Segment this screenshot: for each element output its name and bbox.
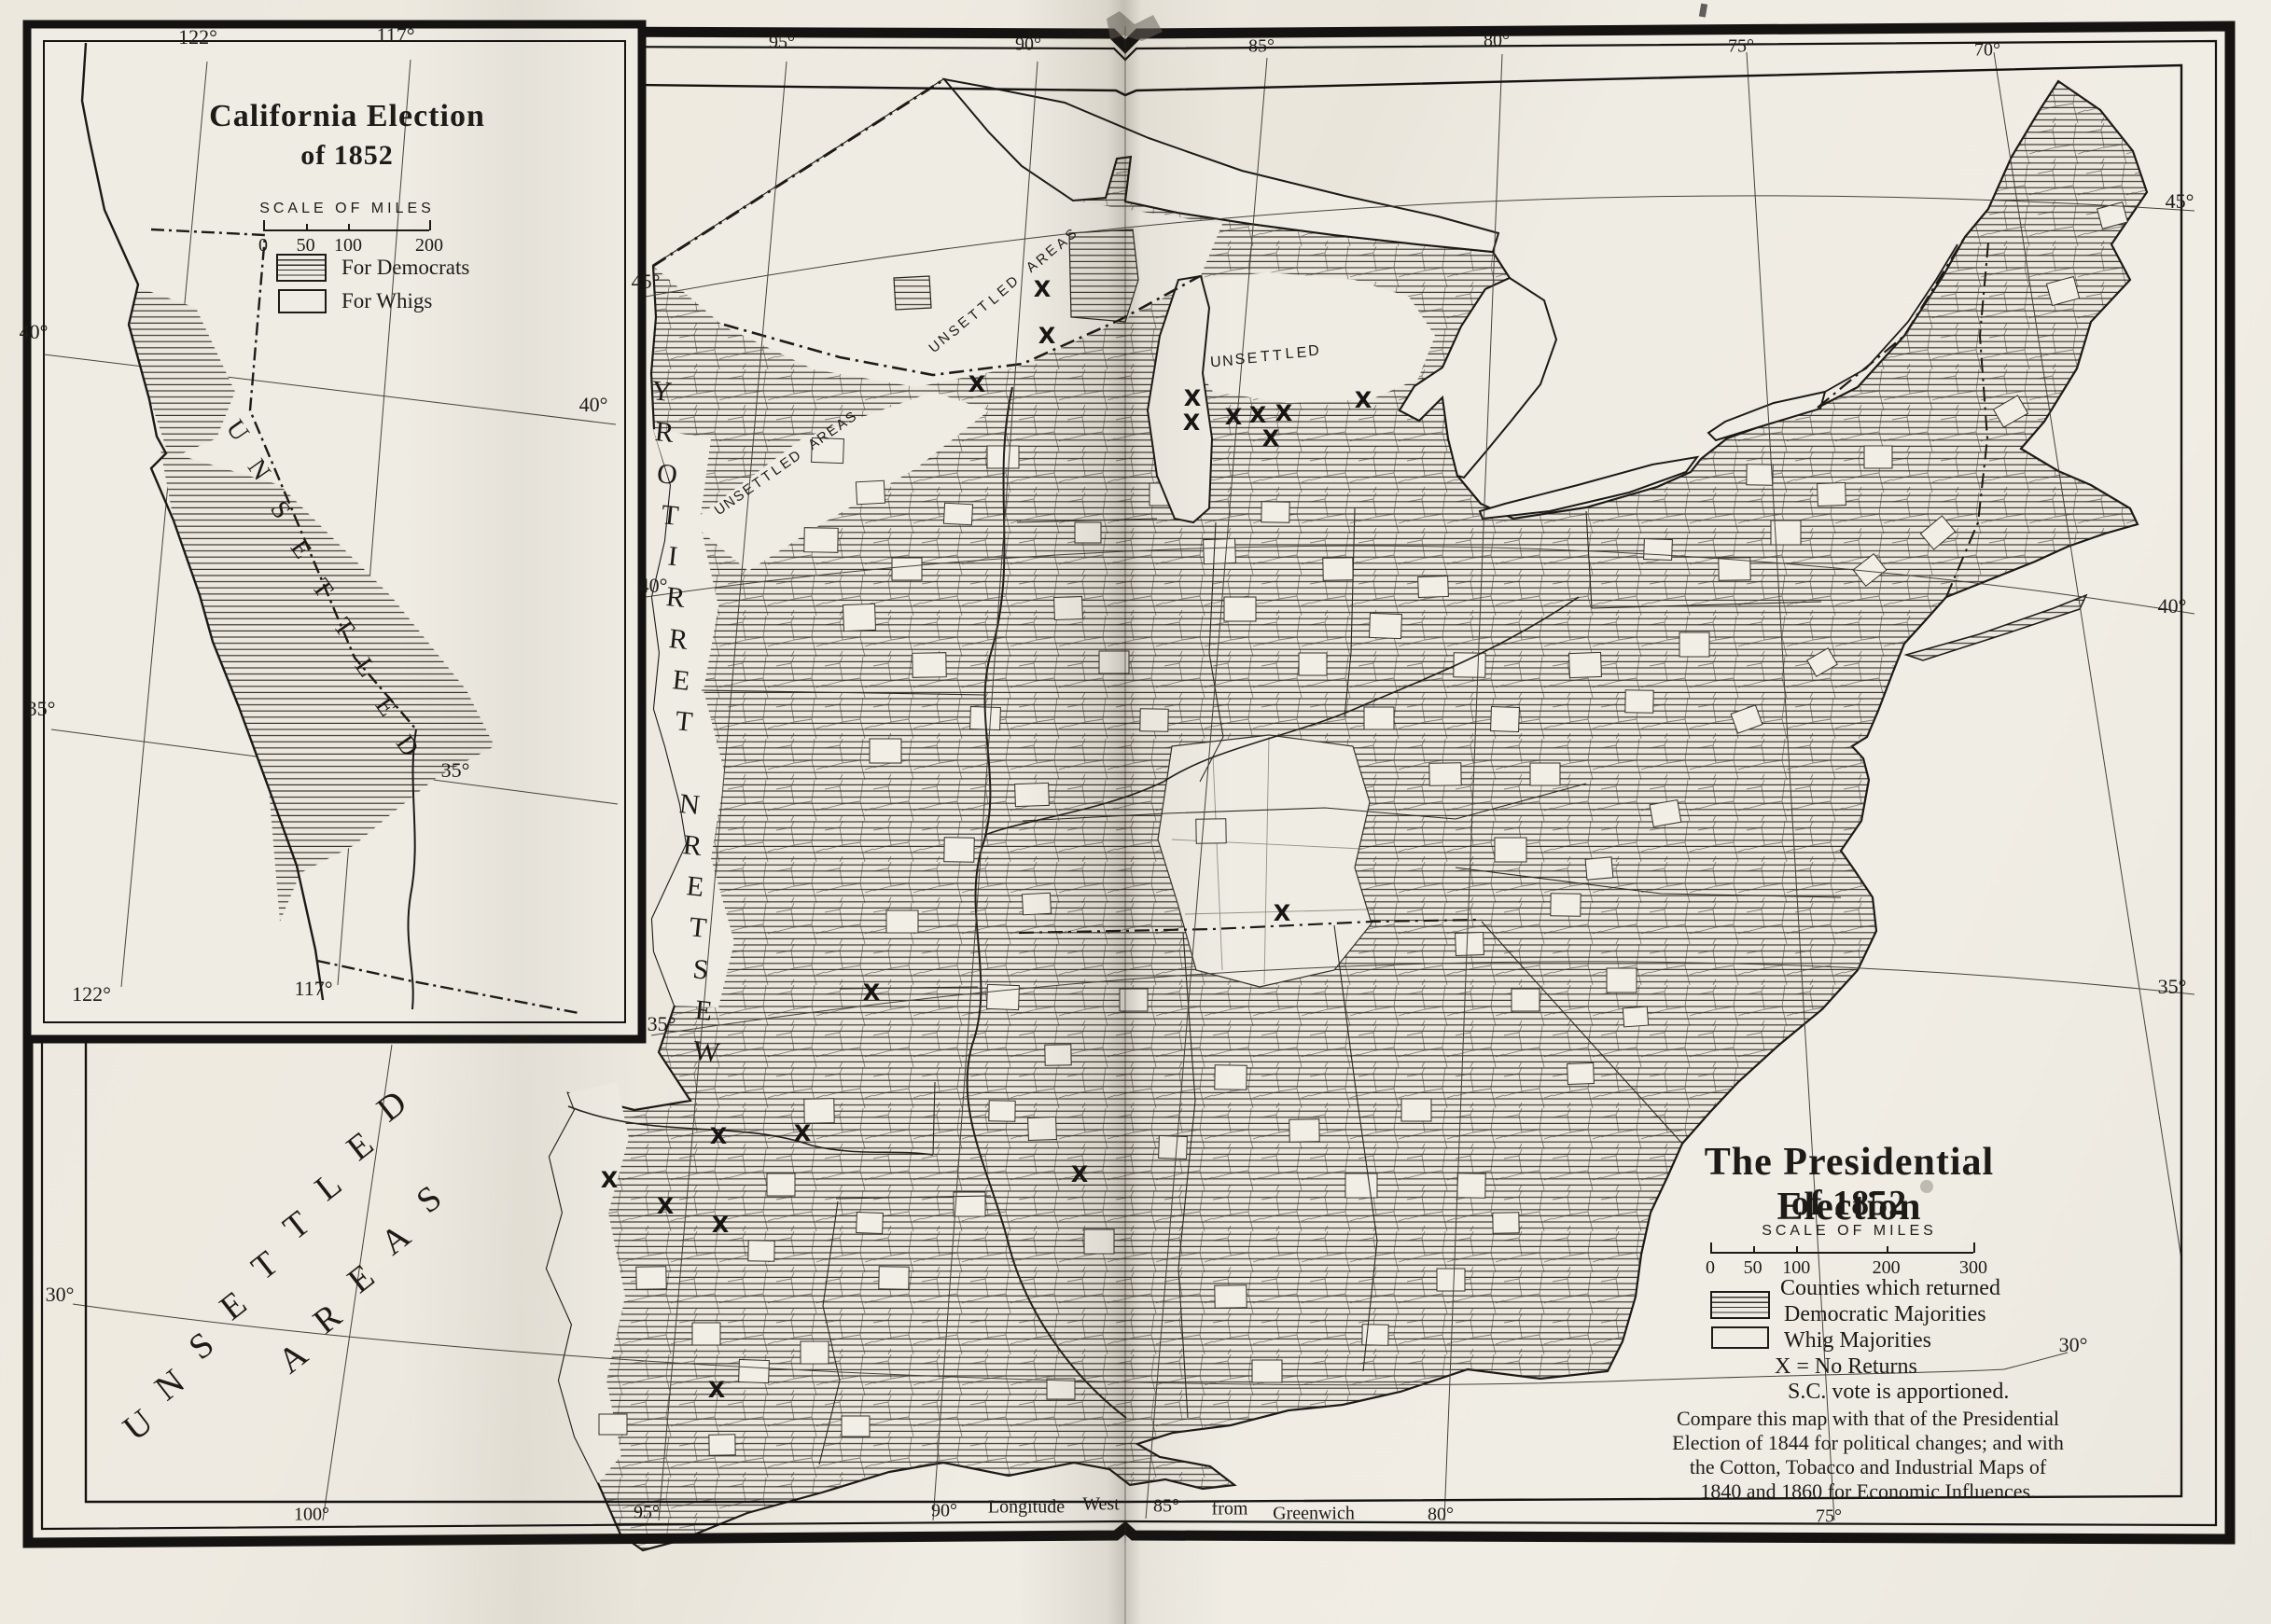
no-returns-x-mark: X bbox=[601, 1167, 619, 1193]
no-returns-x-mark: X bbox=[1183, 409, 1201, 436]
whig-county-patch bbox=[989, 1101, 1015, 1121]
meridian-label-top-70: 70° bbox=[1974, 40, 2000, 62]
inset-legend-democrat-swatch bbox=[276, 254, 327, 282]
compare-note-line: Election of 1844 for political changes; … bbox=[1672, 1431, 2064, 1455]
parallel-label-right-35: 35° bbox=[2158, 975, 2187, 999]
inset-parallel-label-right-35: 35° bbox=[441, 758, 470, 783]
map-sheet: California Election of 1852 Scale of Mil… bbox=[0, 0, 2271, 1624]
whig-county-patch bbox=[1719, 558, 1750, 581]
whig-county-patch bbox=[1323, 558, 1353, 581]
whig-county-patch bbox=[842, 1416, 870, 1437]
unsettled-michigan-letter: D bbox=[1308, 343, 1320, 361]
whig-county-patch bbox=[1418, 576, 1449, 597]
whig-county-patch bbox=[636, 1267, 666, 1290]
whig-county-patch bbox=[1429, 763, 1461, 786]
no-returns-x-mark: X bbox=[1275, 400, 1293, 426]
no-returns-x-mark: X bbox=[1184, 385, 1202, 411]
scale-bar-tick-label: 100 bbox=[334, 235, 362, 257]
whig-county-patch bbox=[1370, 613, 1402, 638]
inset-meridian-label-bottom-122: 122° bbox=[72, 982, 111, 1006]
whig-county-patch bbox=[1120, 989, 1148, 1011]
whig-county-patch bbox=[1456, 932, 1484, 955]
scale-bar-tick bbox=[429, 220, 431, 230]
inset-parallel-label-right-40: 40° bbox=[579, 393, 608, 417]
no-returns-x-mark: X bbox=[1038, 323, 1056, 349]
whig-county-patch bbox=[1204, 538, 1236, 563]
whig-county-patch bbox=[856, 480, 885, 505]
whig-county-patch bbox=[1493, 1213, 1519, 1233]
whig-county-patch bbox=[1818, 482, 1846, 506]
meridian-label-top-90: 90° bbox=[1015, 35, 1041, 56]
california-inset-map bbox=[23, 21, 646, 1043]
whig-county-patch bbox=[692, 1323, 720, 1345]
no-returns-x-mark: X bbox=[712, 1212, 730, 1238]
western-territory-label-letter: T bbox=[688, 911, 708, 945]
whig-county-patch bbox=[1747, 465, 1773, 485]
whig-county-patch bbox=[1261, 502, 1289, 523]
meridian-label-bottom-85: 85° bbox=[1153, 1496, 1179, 1518]
western-territory-label-letter: N bbox=[677, 787, 701, 821]
western-territory-label-letter: E bbox=[685, 870, 705, 904]
whig-county-patch bbox=[1585, 857, 1613, 880]
whig-county-patch bbox=[1015, 783, 1050, 806]
whig-county-patch bbox=[987, 984, 1020, 1009]
inset-legend-whig-label: For Whigs bbox=[341, 289, 432, 313]
western-territory-label-letter: R bbox=[653, 416, 675, 450]
whig-county-patch bbox=[913, 653, 946, 678]
main-legend-sc-note: S.C. vote is apportioned. bbox=[1788, 1380, 2009, 1405]
whig-county-patch bbox=[886, 910, 918, 933]
whig-county-patch bbox=[892, 558, 922, 580]
main-legend-whig-label: Whig Majorities bbox=[1784, 1328, 1931, 1353]
whig-county-patch bbox=[804, 528, 838, 553]
whig-county-patch bbox=[1650, 800, 1681, 827]
no-returns-x-mark: X bbox=[1249, 402, 1267, 428]
scale-bar-tick-label: 200 bbox=[415, 235, 443, 257]
main-scale-caption: Scale of Miles bbox=[1762, 1223, 1937, 1240]
western-territory-label-letter: O bbox=[655, 457, 678, 491]
meridian-label-bottom-80: 80° bbox=[1428, 1505, 1454, 1526]
main-legend-no-returns: X = No Returns bbox=[1775, 1354, 1917, 1380]
bottom-margin-word-west: West bbox=[1082, 1494, 1120, 1516]
whig-county-patch bbox=[1299, 653, 1327, 675]
meridian-label-top-85: 85° bbox=[1248, 36, 1275, 58]
whig-county-patch bbox=[801, 1341, 829, 1364]
whig-county-patch bbox=[1159, 1135, 1188, 1159]
whig-county-patch bbox=[709, 1435, 735, 1455]
western-territory-label-letter: R bbox=[667, 623, 689, 657]
inset-meridian-label-top-117: 117° bbox=[377, 23, 415, 48]
whig-county-patch bbox=[1401, 1099, 1431, 1121]
parallel-label-right-45: 45° bbox=[2166, 189, 2194, 214]
whig-county-patch bbox=[870, 739, 901, 763]
main-legend-democratic-label: Democratic Majorities bbox=[1784, 1302, 1986, 1327]
whig-county-patch bbox=[1607, 968, 1637, 992]
whig-county-patch bbox=[1679, 632, 1709, 657]
scale-bar-tick bbox=[1973, 1242, 1975, 1253]
no-returns-x-mark: X bbox=[968, 371, 986, 397]
whig-county-patch bbox=[1491, 706, 1520, 731]
western-territory-label-letter: T bbox=[660, 499, 680, 533]
main-legend-democrat-swatch bbox=[1710, 1291, 1770, 1319]
whig-county-patch bbox=[1252, 1360, 1282, 1382]
no-returns-x-mark: X bbox=[1355, 387, 1372, 413]
compare-note-line: Compare this map with that of the Presid… bbox=[1677, 1407, 2059, 1431]
scale-bar-tick bbox=[1887, 1246, 1888, 1253]
no-returns-x-mark: X bbox=[1034, 276, 1052, 302]
whig-county-patch bbox=[1140, 709, 1168, 732]
whig-county-patch bbox=[879, 1267, 909, 1290]
inset-scale-caption: Scale of Miles bbox=[259, 201, 435, 217]
inset-meridian-label-top-122: 122° bbox=[178, 25, 217, 49]
no-returns-x-mark: X bbox=[863, 979, 881, 1006]
scale-bar-tick-label: 50 bbox=[1744, 1257, 1762, 1279]
meridian-label-bottom-90: 90° bbox=[931, 1501, 957, 1522]
whig-county-patch bbox=[1028, 1117, 1057, 1140]
whig-county-patch bbox=[1495, 838, 1526, 862]
parallel-label-left-35: 35° bbox=[648, 1012, 676, 1036]
whig-county-patch bbox=[1364, 707, 1394, 729]
parallel-label-left-40: 40° bbox=[639, 574, 668, 598]
whig-county-patch bbox=[1045, 1045, 1071, 1065]
whig-county-patch bbox=[1437, 1269, 1465, 1291]
inset-parallel-label-left-35: 35° bbox=[27, 697, 56, 721]
unsettled-michigan-letter: L bbox=[1285, 346, 1294, 364]
whig-county-patch bbox=[739, 1359, 770, 1382]
scale-bar-tick-label: 0 bbox=[1706, 1257, 1715, 1279]
western-territory-label-letter: R bbox=[664, 581, 686, 615]
western-territory-label-letter: S bbox=[691, 953, 710, 987]
meridian-label-bottom-95: 95° bbox=[634, 1503, 660, 1524]
whig-county-patch bbox=[1215, 1285, 1247, 1309]
scale-bar-tick bbox=[1796, 1246, 1798, 1253]
parallel-label-right-30: 30° bbox=[2059, 1333, 2088, 1357]
whig-county-patch bbox=[944, 838, 974, 863]
scale-bar-tick bbox=[263, 220, 265, 230]
whig-county-patch bbox=[1567, 1063, 1595, 1085]
no-returns-x-mark: X bbox=[657, 1193, 675, 1219]
bottom-margin-word-from: from bbox=[1212, 1499, 1248, 1520]
main-legend-whig-swatch bbox=[1711, 1326, 1769, 1349]
whig-county-patch bbox=[748, 1241, 774, 1261]
compare-note-line: the Cotton, Tobacco and Industrial Maps … bbox=[1690, 1455, 2046, 1479]
western-territory-label-letter: E bbox=[671, 664, 691, 698]
whig-county-patch bbox=[767, 1173, 795, 1196]
bottom-margin-word-longitude: Longitude bbox=[988, 1497, 1065, 1519]
meridian-label-bottom-75: 75° bbox=[1816, 1506, 1842, 1528]
bottom-margin-word-greenwich: Greenwich bbox=[1273, 1504, 1355, 1525]
whig-county-patch bbox=[1623, 1006, 1648, 1027]
inset-title-line1: California Election bbox=[209, 99, 485, 134]
scale-bar-tick bbox=[306, 224, 308, 230]
whig-county-patch bbox=[1289, 1119, 1319, 1143]
whig-county-patch bbox=[1022, 893, 1051, 915]
whig-county-patch bbox=[599, 1414, 627, 1435]
whig-county-patch bbox=[1084, 1229, 1114, 1254]
whig-county-patch bbox=[1864, 446, 1892, 468]
inset-legend-whig-swatch bbox=[278, 289, 327, 313]
no-returns-x-mark: X bbox=[1071, 1161, 1089, 1187]
parallel-label-left-30: 30° bbox=[46, 1283, 75, 1307]
whig-county-patch bbox=[1512, 989, 1540, 1011]
meridian-label-top-80: 80° bbox=[1484, 31, 1510, 52]
scale-bar-tick bbox=[1710, 1242, 1712, 1253]
no-returns-x-mark: X bbox=[1274, 900, 1291, 926]
whig-county-patch bbox=[1047, 1379, 1075, 1399]
unsettled-michigan-letter: U bbox=[1210, 354, 1222, 372]
unsettled-michigan-letter: E bbox=[1296, 344, 1307, 362]
western-territory-label-letter: E bbox=[693, 994, 714, 1028]
unsettled-michigan-letter: N bbox=[1222, 353, 1234, 370]
no-returns-x-mark: X bbox=[794, 1120, 812, 1146]
no-returns-x-mark: X bbox=[708, 1377, 726, 1403]
meridian-label-top-75: 75° bbox=[1728, 36, 1754, 58]
parallel-label-right-40: 40° bbox=[2158, 594, 2187, 618]
parallel-label-left-45: 45° bbox=[632, 270, 661, 294]
scale-bar-tick-label: 0 bbox=[258, 235, 268, 257]
whig-county-patch bbox=[1457, 1173, 1485, 1199]
whig-county-patch bbox=[1345, 1173, 1377, 1198]
meridian-label-bottom-100: 100° bbox=[294, 1505, 329, 1526]
whig-county-patch bbox=[1454, 653, 1485, 678]
no-returns-x-mark: X bbox=[1262, 425, 1280, 451]
whig-county-patch bbox=[1215, 1065, 1247, 1090]
main-title-line2: of 1852 bbox=[1791, 1183, 1907, 1224]
meridian-label-top-95: 95° bbox=[769, 33, 795, 54]
whig-county-patch bbox=[1075, 522, 1101, 543]
western-territory-label-letter: R bbox=[681, 829, 703, 863]
whig-county-patch bbox=[1625, 690, 1653, 714]
western-territory-label-letter: Y bbox=[649, 375, 673, 409]
western-territory-label-letter: W bbox=[691, 1035, 721, 1070]
whig-county-patch bbox=[1196, 819, 1226, 844]
inset-title-line2: of 1852 bbox=[300, 140, 394, 172]
no-returns-x-mark: X bbox=[710, 1123, 728, 1149]
whig-county-patch bbox=[1224, 597, 1256, 621]
western-territory-label-letter: T bbox=[674, 705, 694, 739]
scale-bar-line bbox=[263, 229, 429, 231]
unsettled-michigan-letter: T bbox=[1260, 349, 1270, 367]
whig-county-patch bbox=[943, 503, 972, 525]
unsettled-michigan-letter: T bbox=[1272, 347, 1282, 365]
whig-county-patch bbox=[1530, 763, 1560, 785]
compare-note-line: 1840 and 1860 for Economic Influences. bbox=[1700, 1479, 2035, 1504]
main-legend-returned-label: Counties which returned bbox=[1780, 1276, 2000, 1301]
whig-county-patch bbox=[1569, 652, 1602, 677]
whig-county-patch bbox=[1551, 894, 1581, 917]
scale-bar-tick bbox=[1753, 1246, 1755, 1253]
whig-county-patch bbox=[857, 1213, 884, 1234]
unsettled-michigan-letter: E bbox=[1247, 350, 1258, 368]
whig-county-patch bbox=[843, 604, 876, 631]
whig-county-patch bbox=[1054, 596, 1083, 619]
unsettled-michigan-letter: S bbox=[1234, 352, 1246, 369]
inset-legend-democrat-label: For Democrats bbox=[341, 256, 469, 280]
scale-bar-tick bbox=[348, 224, 350, 230]
inset-parallel-label-left-40: 40° bbox=[20, 320, 49, 344]
inset-meridian-label-bottom-117: 117° bbox=[295, 977, 333, 1001]
scale-bar-line bbox=[1710, 1252, 1973, 1254]
whig-county-patch bbox=[1644, 538, 1673, 560]
no-returns-x-mark: X bbox=[1225, 404, 1243, 430]
